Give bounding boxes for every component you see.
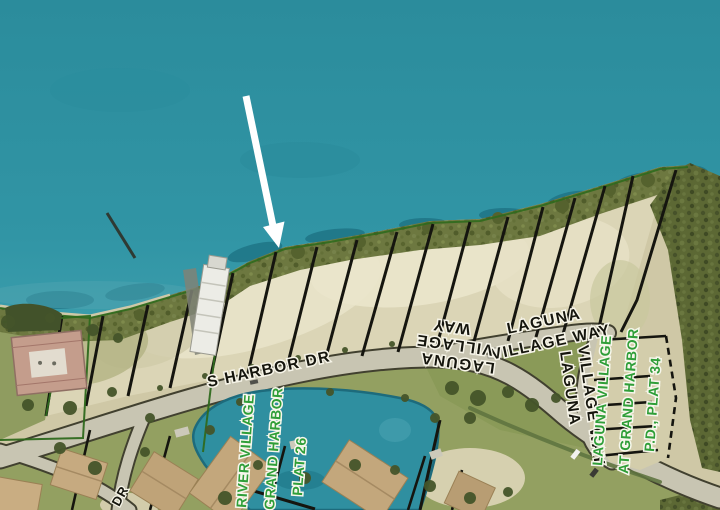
- map-canvas: S HARBOR DR DR LAGUNA VILLAGE WAY LAGUNA…: [0, 0, 720, 510]
- aerial-plat-map: S HARBOR DR DR LAGUNA VILLAGE WAY LAGUNA…: [0, 0, 720, 510]
